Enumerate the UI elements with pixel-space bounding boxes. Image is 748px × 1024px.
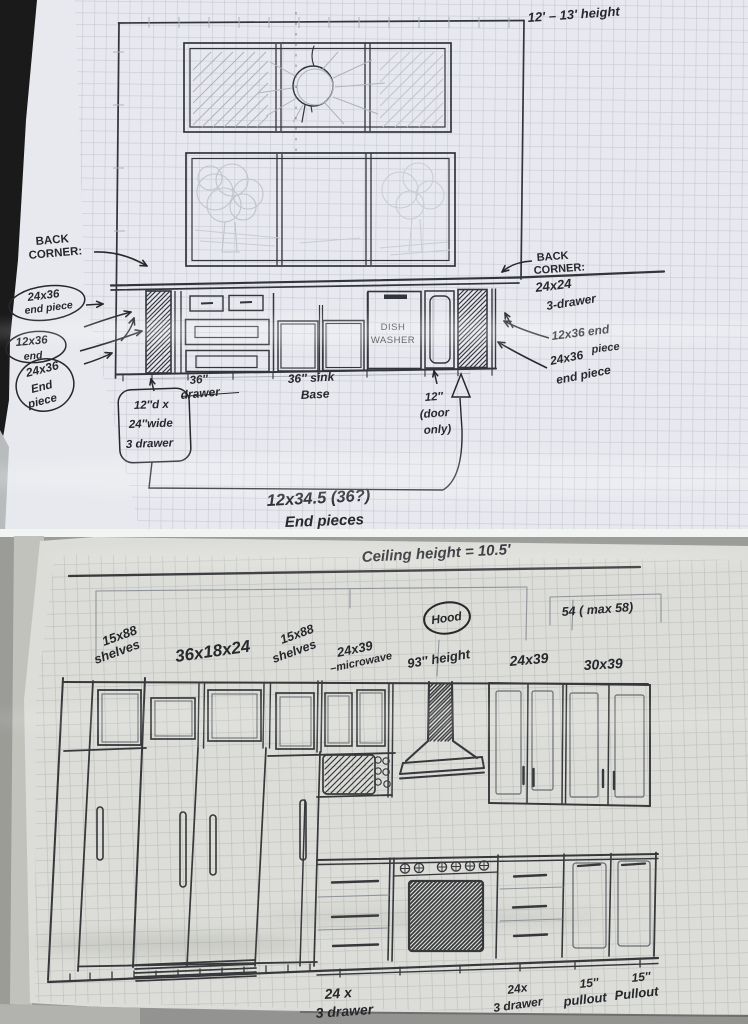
svg-text:DISH: DISH [381,322,406,333]
svg-text:12″: 12″ [424,391,444,404]
svg-text:24″wide: 24″wide [128,417,174,431]
svg-text:24 x: 24 x [323,984,354,1002]
svg-text:BACK: BACK [536,250,569,264]
svg-text:15″: 15″ [631,969,653,985]
svg-text:WASHER: WASHER [371,335,415,346]
svg-text:12″d x: 12″d x [134,399,170,412]
svg-text:only): only) [423,423,451,437]
svg-text:Base: Base [300,386,330,401]
svg-text:End pieces: End pieces [285,511,365,531]
svg-text:30x39: 30x39 [583,655,623,673]
svg-text:(door: (door [419,407,450,421]
svg-text:3 drawer: 3 drawer [126,437,174,451]
svg-text:36″ sink: 36″ sink [287,370,335,386]
svg-text:15″: 15″ [579,975,601,991]
